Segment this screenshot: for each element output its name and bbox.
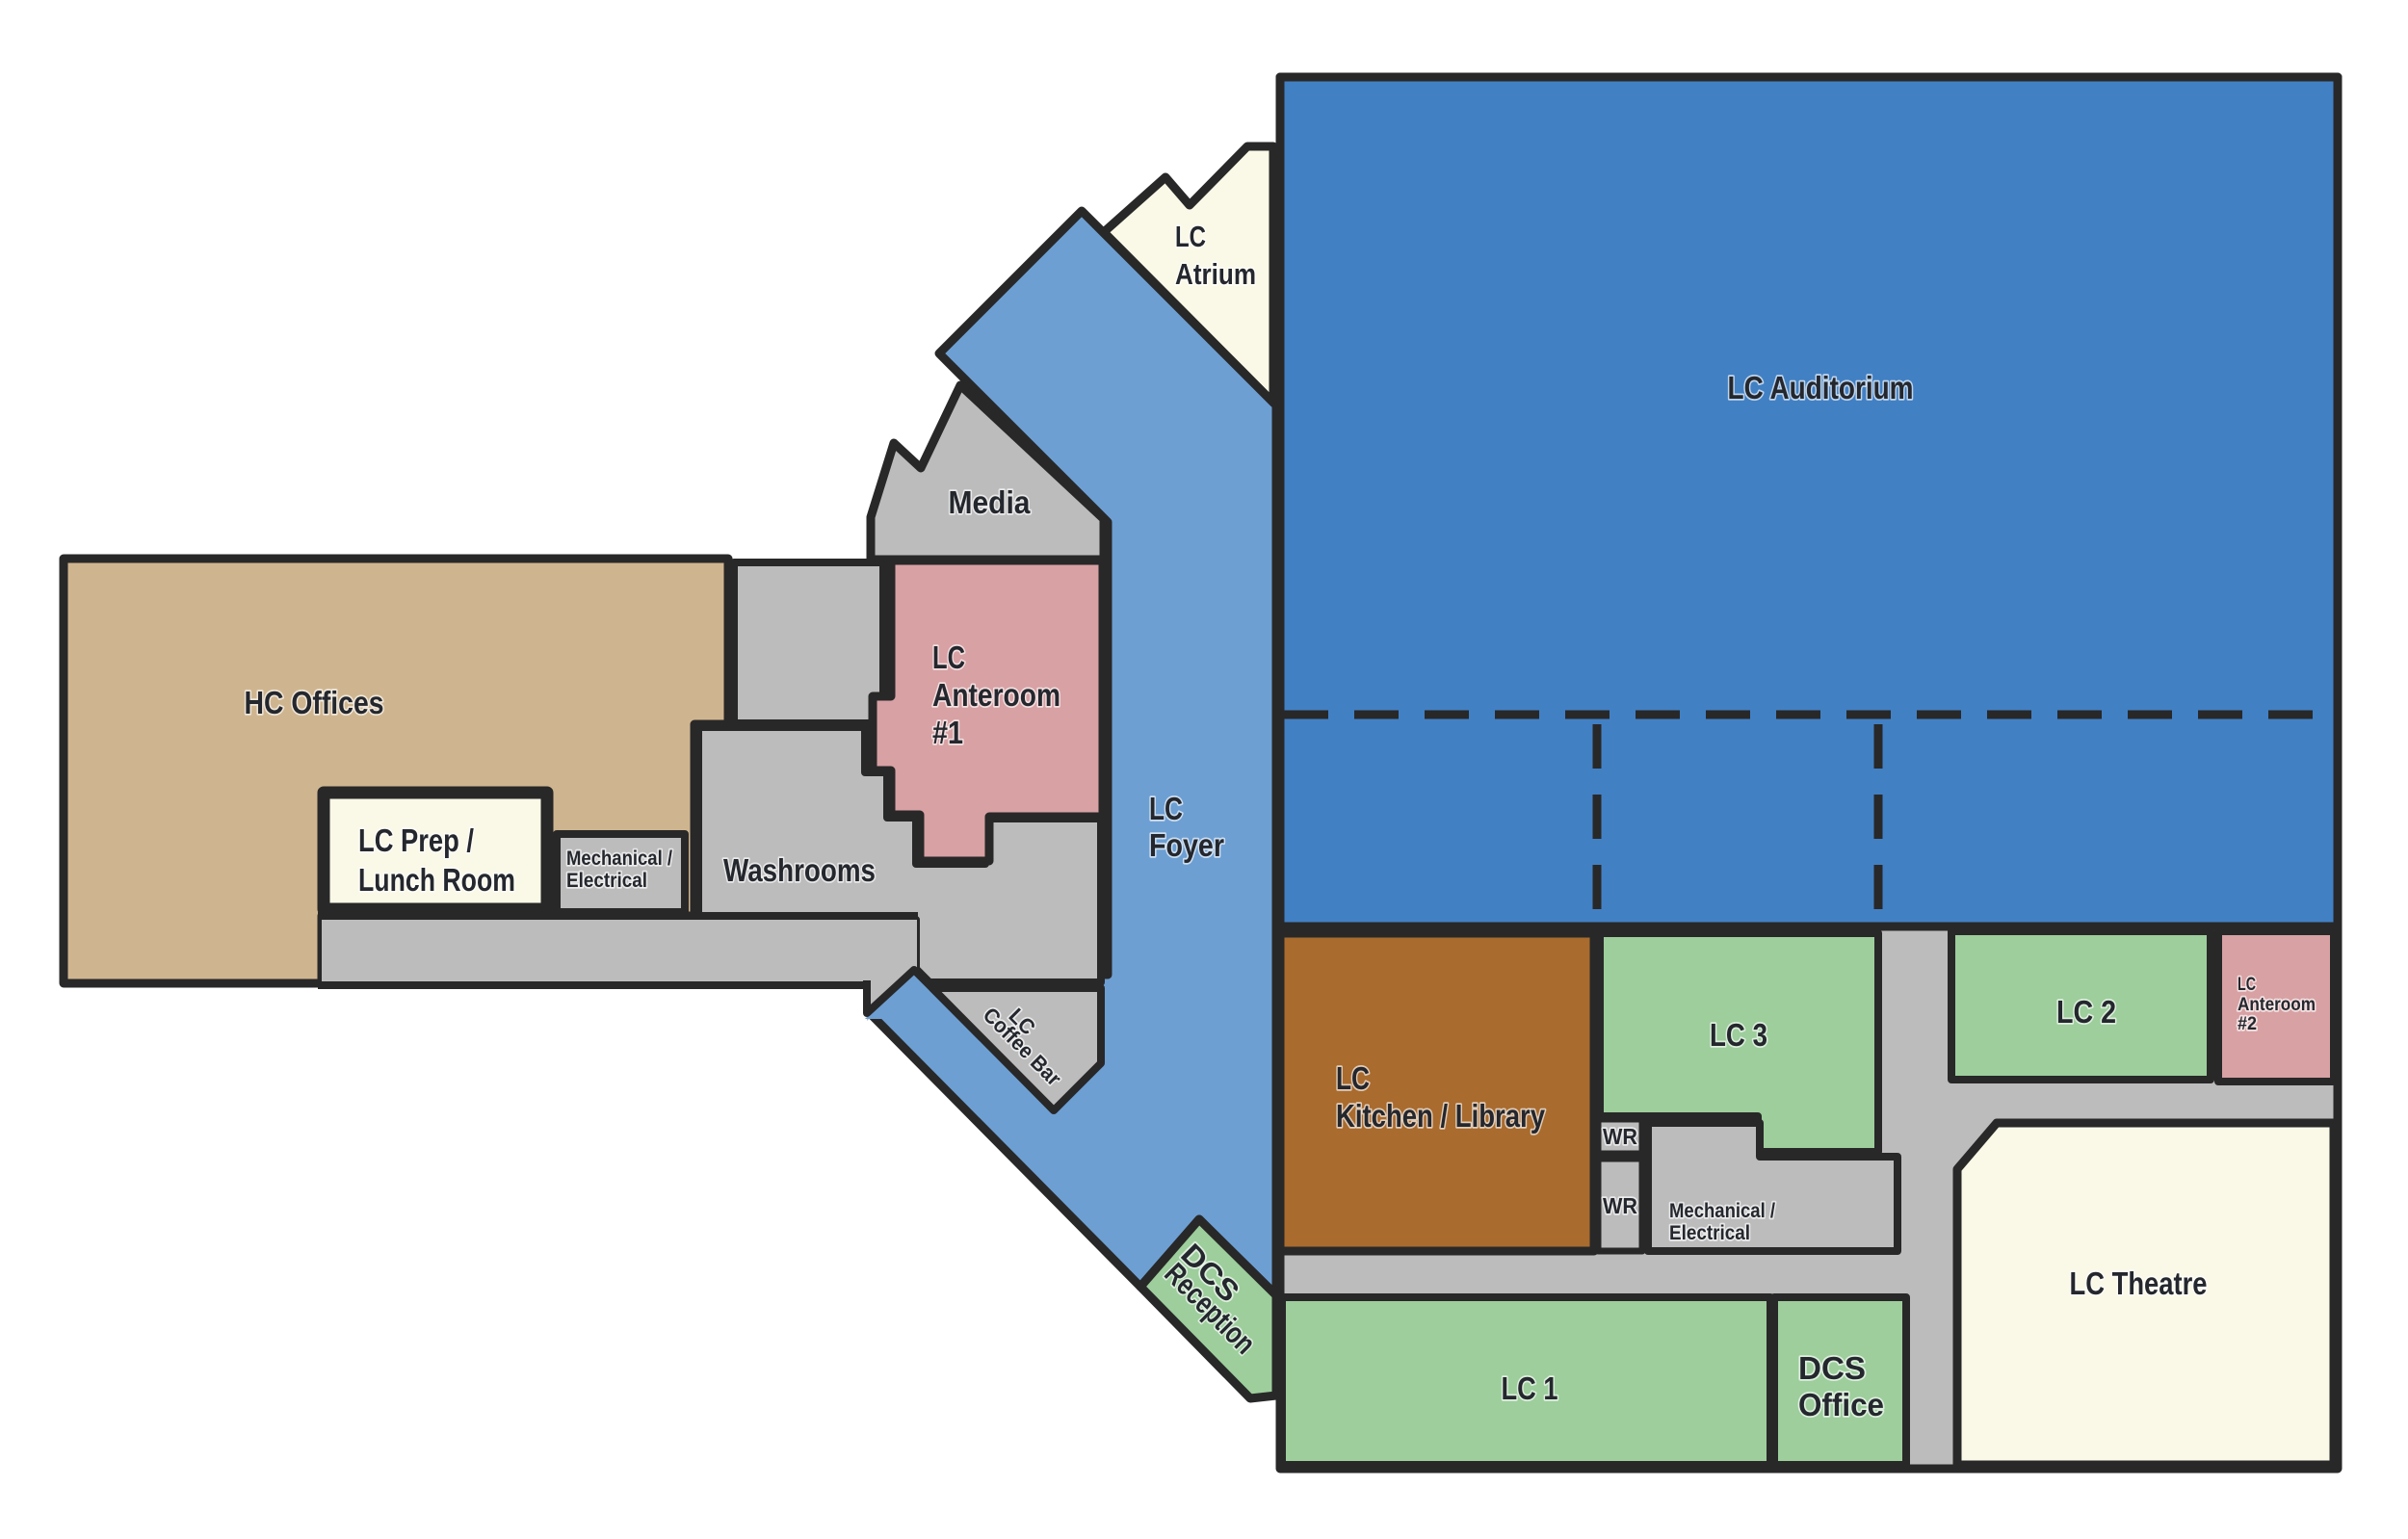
svg-text:Mechanical /: Mechanical / (1669, 1200, 1775, 1222)
svg-text:LC: LC (932, 639, 965, 675)
svg-text:LC Auditorium: LC Auditorium (1728, 370, 1914, 405)
svg-text:Lunch Room: Lunch Room (358, 862, 515, 898)
svg-text:LC: LC (1336, 1060, 1370, 1096)
svg-text:LC 3: LC 3 (1710, 1017, 1767, 1053)
svg-text:Atrium: Atrium (1175, 257, 1256, 291)
svg-text:LC: LC (1175, 220, 1206, 253)
svg-text:LC 2: LC 2 (2056, 994, 2116, 1030)
svg-text:Kitchen / Library: Kitchen / Library (1336, 1098, 1546, 1134)
svg-text:Anteroom: Anteroom (2238, 995, 2316, 1015)
svg-text:Media: Media (949, 484, 1032, 520)
svg-text:LC 1: LC 1 (1502, 1370, 1558, 1406)
svg-text:Foyer: Foyer (1149, 827, 1224, 863)
svg-text:Office: Office (1798, 1387, 1884, 1422)
svg-text:Electrical: Electrical (1669, 1222, 1750, 1244)
svg-text:#1: #1 (932, 715, 963, 750)
svg-text:Anteroom: Anteroom (932, 677, 1060, 713)
svg-text:WR: WR (1603, 1124, 1637, 1149)
svg-text:#2: #2 (2238, 1014, 2257, 1034)
svg-text:Mechanical /: Mechanical / (566, 848, 672, 870)
svg-text:Washrooms: Washrooms (723, 852, 876, 888)
svg-text:Electrical: Electrical (566, 870, 647, 892)
svg-text:HC Offices: HC Offices (245, 685, 384, 720)
svg-text:DCS: DCS (1798, 1350, 1866, 1386)
svg-text:LC: LC (1149, 791, 1183, 826)
svg-text:LC: LC (2238, 975, 2256, 995)
svg-text:LC Prep /: LC Prep / (358, 822, 474, 858)
svg-text:LC Theatre: LC Theatre (2070, 1265, 2208, 1301)
svg-text:WR: WR (1603, 1193, 1637, 1218)
